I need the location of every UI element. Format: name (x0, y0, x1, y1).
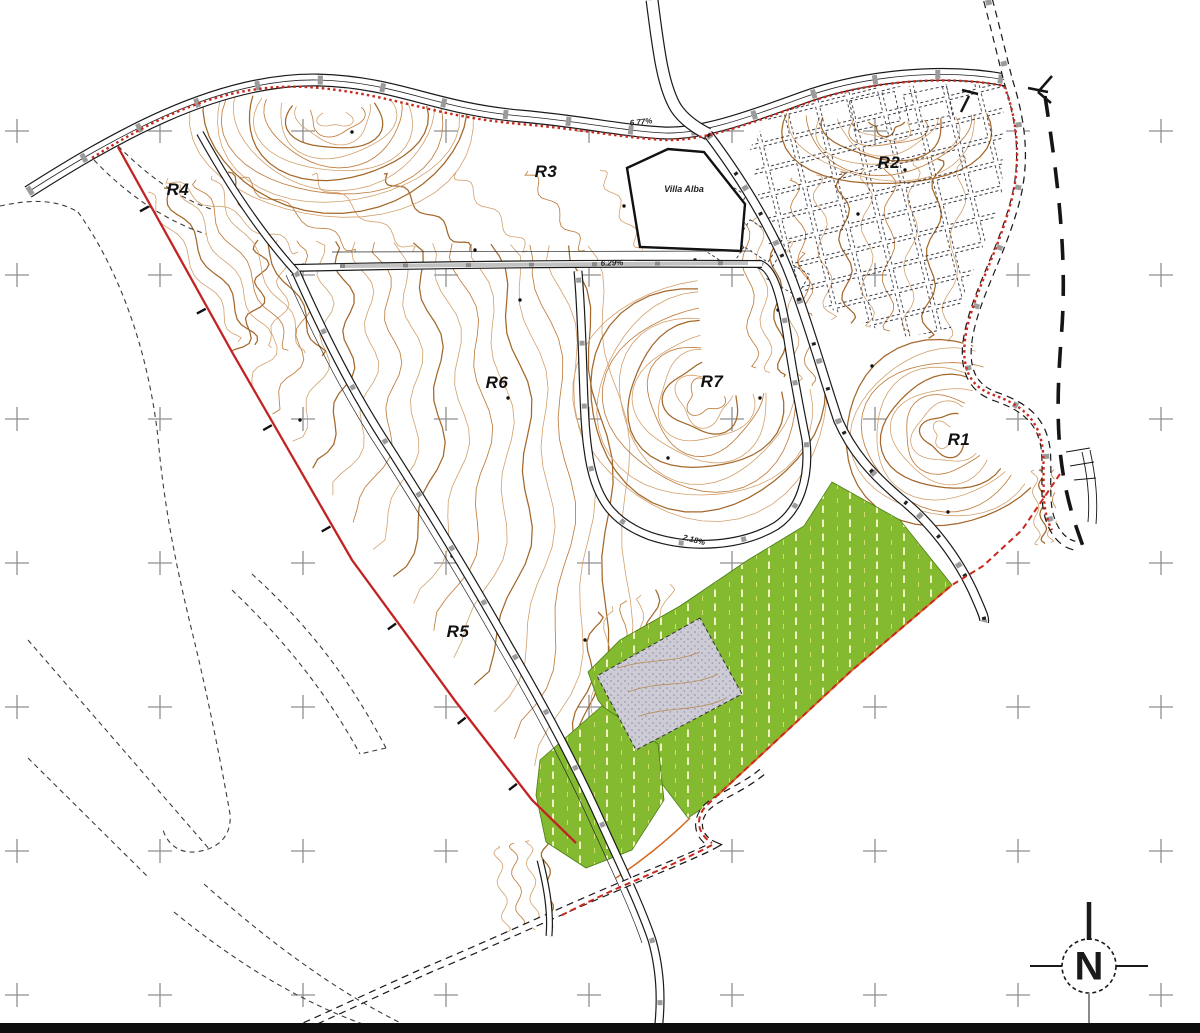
drawing-frame-bar (0, 1023, 1200, 1033)
north-compass (1030, 902, 1148, 1032)
plot-grid-r2 (750, 82, 1004, 338)
site-plan-canvas: R1 R2 R3 R4 R5 R6 R7 Villa Alba 6.77% 6.… (0, 0, 1200, 1033)
existing-road-outlines (0, 146, 420, 1033)
site-plan-drawing (0, 0, 1200, 1033)
road-edge-lines (286, 251, 752, 943)
